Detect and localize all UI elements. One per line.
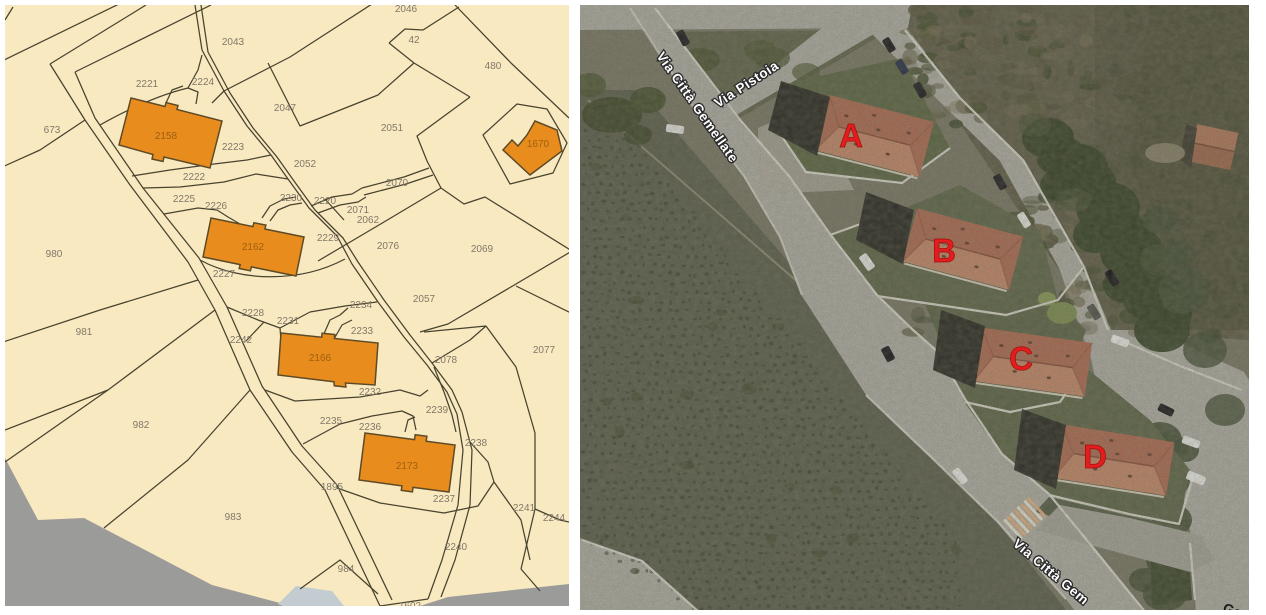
- svg-text:2244: 2244: [543, 513, 566, 524]
- svg-text:42: 42: [408, 35, 420, 46]
- svg-text:673: 673: [44, 125, 61, 136]
- svg-text:2224: 2224: [192, 77, 215, 88]
- svg-text:2221: 2221: [136, 79, 159, 90]
- svg-text:1895: 1895: [321, 482, 344, 493]
- svg-text:2230: 2230: [280, 193, 303, 204]
- svg-text:981: 981: [76, 327, 93, 338]
- svg-text:2051: 2051: [381, 123, 404, 134]
- svg-text:984: 984: [338, 564, 355, 575]
- svg-text:2220: 2220: [314, 196, 337, 207]
- svg-text:2231: 2231: [277, 316, 300, 327]
- svg-text:2046: 2046: [395, 4, 418, 15]
- svg-text:D: D: [1083, 438, 1107, 475]
- svg-text:2238: 2238: [465, 438, 488, 449]
- svg-text:2166: 2166: [309, 353, 332, 364]
- svg-text:980: 980: [46, 249, 63, 260]
- svg-text:2223: 2223: [222, 142, 245, 153]
- svg-text:2070: 2070: [386, 178, 409, 189]
- svg-text:2078: 2078: [435, 355, 458, 366]
- svg-text:2076: 2076: [377, 241, 400, 252]
- svg-text:2235: 2235: [320, 416, 343, 427]
- svg-text:2052: 2052: [294, 159, 317, 170]
- svg-text:2069: 2069: [471, 244, 494, 255]
- svg-text:1602: 1602: [399, 601, 422, 612]
- svg-text:2229: 2229: [317, 233, 340, 244]
- svg-text:2239: 2239: [426, 405, 449, 416]
- svg-text:982: 982: [133, 420, 150, 431]
- svg-text:2043: 2043: [222, 37, 245, 48]
- svg-text:C: C: [1009, 340, 1033, 377]
- svg-text:2173: 2173: [396, 461, 419, 472]
- svg-text:2240: 2240: [445, 542, 468, 553]
- svg-text:2232: 2232: [359, 387, 382, 398]
- svg-text:B: B: [932, 232, 956, 269]
- svg-text:2057: 2057: [413, 294, 436, 305]
- svg-text:480: 480: [485, 61, 502, 72]
- svg-text:2047: 2047: [274, 103, 297, 114]
- svg-text:2236: 2236: [359, 422, 382, 433]
- svg-text:2077: 2077: [533, 345, 556, 356]
- svg-text:2233: 2233: [351, 326, 374, 337]
- svg-text:A: A: [839, 117, 863, 154]
- svg-text:2225: 2225: [173, 194, 196, 205]
- svg-text:2062: 2062: [357, 215, 380, 226]
- svg-text:2222: 2222: [183, 172, 206, 183]
- svg-text:2241: 2241: [513, 503, 536, 514]
- svg-text:2226: 2226: [205, 201, 228, 212]
- svg-text:1670: 1670: [527, 139, 550, 150]
- svg-text:2242: 2242: [230, 335, 253, 346]
- svg-text:2158: 2158: [155, 131, 178, 142]
- svg-text:983: 983: [225, 512, 242, 523]
- svg-text:2227: 2227: [213, 269, 236, 280]
- svg-text:2162: 2162: [242, 242, 265, 253]
- svg-text:2228: 2228: [242, 308, 265, 319]
- svg-text:2237: 2237: [433, 494, 456, 505]
- svg-text:2234: 2234: [350, 300, 373, 311]
